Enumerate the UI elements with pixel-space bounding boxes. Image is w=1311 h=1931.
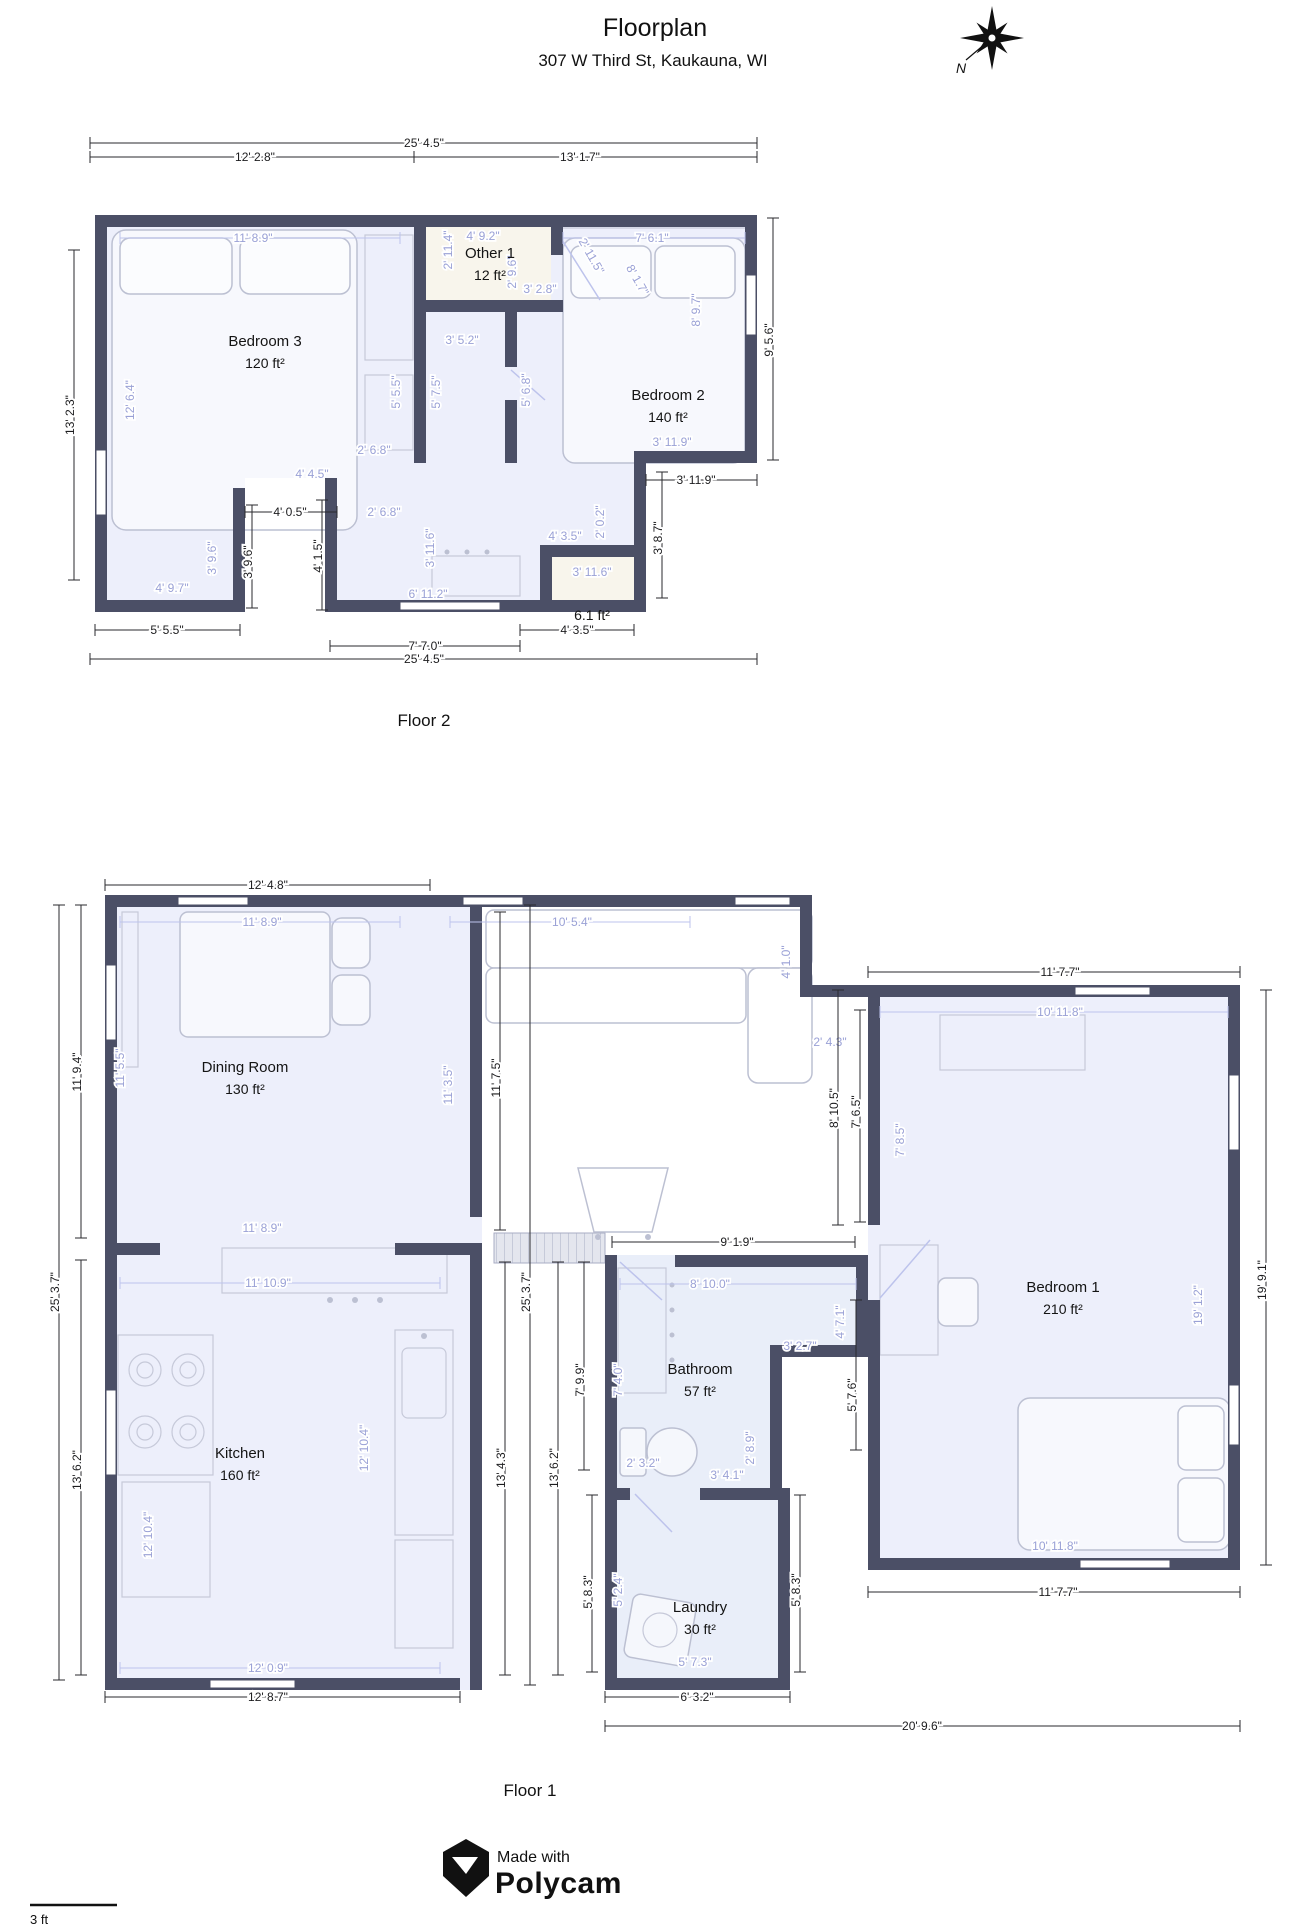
footer: Made with Polycam 3 ft [30,1839,622,1927]
room-area-label: 57 ft² [684,1383,716,1399]
dimension-label: 4' 3.5" [560,623,593,637]
dimension-label: 13' 4.3" [494,1448,508,1488]
dimension-label: 5' 7.5" [429,375,443,408]
bed-bedroom3 [112,230,357,530]
dimension-label: 11' 7.7" [1038,1585,1077,1599]
dimension-label: 7' 6.1" [635,231,668,245]
dimension-label: 3' 8.7" [651,521,665,554]
dimension-label: 4' 7.1" [833,1305,847,1338]
room-area-label: 130 ft² [225,1081,265,1097]
dimension-label: 8' 9.7" [689,293,703,326]
armchair [578,1168,668,1240]
dimension-label: 11' 7.7" [1040,965,1079,979]
room-area-label: 210 ft² [1043,1301,1083,1317]
dimension-label: 10' 5.4" [552,915,592,929]
dimension-label: 3' 4.1" [710,1468,743,1482]
floor2-label: Floor 2 [398,711,451,730]
room-name-label: Bedroom 2 [631,387,704,404]
dimension-label: 19' 9.1" [1255,1260,1269,1300]
window-right [746,275,756,335]
dimension-label: 11' 10.9" [245,1276,291,1290]
dimension-label: 12' 0.9" [248,1661,288,1675]
dimension-label: 3' 11.9" [652,435,691,449]
compass-icon: N [956,6,1024,76]
dimension-label: 2' 3.2" [626,1456,659,1470]
room-name-label: Bathroom [667,1361,732,1378]
room-area-label: 6.1 ft² [574,607,610,623]
dimension-label: 3' 11.6" [423,528,437,567]
dimension-label: 6' 3.2" [680,1690,713,1704]
polycam-logo-icon [443,1839,489,1897]
room-name-label: Dining Room [202,1059,289,1076]
dimension-label: 2' 6.8" [357,443,390,457]
staircase [494,1233,605,1263]
dimension-label: 11' 8.9" [242,915,281,929]
dimension-label: 25' 3.7" [48,1272,62,1312]
dimension-label: 20' 9.6" [902,1719,942,1733]
dimension-label: 11' 3.5" [441,1065,455,1104]
dimension-label: 7' 8.5" [893,1123,907,1156]
floor1-plan: 12' 4.8"25' 3.7"11' 9.4"13' 6.2"11' 8.9"… [48,878,1272,1800]
dimension-label: 9' 5.6" [762,323,776,356]
dimension-label: 3' 2.7" [783,1339,816,1353]
dimension-label: 11' 5.5" [113,1048,127,1087]
floorplan-page: Floorplan 307 W Third St, Kaukauna, WI N [0,0,1311,1931]
dimension-label: 3' 2.8" [523,282,556,296]
dimension-label: 4' 9.2" [466,229,499,243]
dimension-label: 3' 5.2" [445,333,478,347]
dimension-label: 5' 7.6" [845,1378,859,1411]
dimension-label: 13' 6.2" [547,1448,561,1488]
dimension-label: 13' 1.7" [560,150,600,164]
sofa [486,910,812,1083]
dimension-label: 4' 9.7" [155,581,188,595]
dimension-label: 3' 9.6" [241,545,255,578]
window-bottom [400,602,500,610]
dimension-label: 12' 10.4" [357,1425,371,1472]
dimension-label: 25' 4.5" [404,652,444,666]
room-name-label: Other 1 [465,245,515,262]
dimension-label: 10' 11.8" [1032,1539,1078,1553]
dimension-label: 2' 4.3" [813,1035,846,1049]
dimension-label: 2' 8.9" [743,1431,757,1464]
compass-north-label: N [956,60,967,76]
dimension-label: 7' 6.5" [849,1095,863,1128]
dimension-label: 5' 5.5" [150,623,183,637]
room-name-label: Kitchen [215,1445,265,1462]
dimension-label: 5' 6.8" [519,373,533,406]
dimension-label: 25' 4.5" [404,136,444,150]
dimension-label: 5' 7.3" [678,1655,711,1669]
dimension-label: 4' 4.5" [295,467,328,481]
dimension-label: 12' 10.4" [141,1512,155,1559]
dimension-label: 5' 8.3" [581,1575,595,1608]
scale-label: 3 ft [30,1912,48,1927]
dimension-label: 12' 2.8" [235,150,275,164]
room-name-label: Laundry [673,1599,728,1616]
room-area-label: 120 ft² [245,355,285,371]
dimension-label: 4' 1.0" [779,945,793,978]
dimension-label: 8' 10.0" [690,1277,730,1291]
dimension-label: 19' 1.2" [1191,1285,1205,1325]
page-title: Floorplan [603,14,707,42]
dimension-label: 4' 0.5" [273,505,306,519]
dimension-label: 5' 5.5" [389,375,403,408]
dimension-label: 3' 11.9" [676,473,715,487]
dimension-label: 13' 6.2" [70,1450,84,1490]
room-area-label: 12 ft² [474,267,506,283]
window-left [96,450,106,515]
dimension-label: 12' 4.8" [248,878,288,892]
dimension-label: 2' 0.2" [593,505,607,538]
dimension-label: 11' 8.9" [233,231,272,245]
dimension-label: 25' 3.7" [519,1272,533,1312]
made-with-text: Made with [497,1849,570,1866]
dimension-label: 9' 1.9" [720,1235,753,1249]
dimension-label: 3' 9.6" [205,541,219,574]
dimension-label: 11' 8.9" [242,1221,281,1235]
room-name-label: Bedroom 3 [228,333,301,350]
bed-bedroom2 [557,228,751,463]
room-area-label: 140 ft² [648,409,688,425]
floor1-label: Floor 1 [504,1781,557,1800]
dimension-label: 5' 2.4" [611,1573,625,1606]
room-area-label: 30 ft² [684,1621,716,1637]
room-name-label: Bedroom 1 [1026,1279,1099,1296]
dimension-label: 11' 9.4" [70,1052,84,1091]
dimension-label: 7' 7.0" [408,639,441,653]
dimension-label: 2' 11.4" [441,230,455,269]
dimension-label: 2' 6.8" [367,505,400,519]
dimension-label: 8' 10.5" [827,1088,841,1128]
page-subtitle: 307 W Third St, Kaukauna, WI [538,51,767,70]
dimension-label: 13' 2.3" [63,395,77,435]
floorplan-canvas: Floorplan 307 W Third St, Kaukauna, WI N [0,0,1311,1931]
room-kitchen-floor [105,1255,482,1690]
floor2-plan: 25' 4.5"12' 2.8"13' 1.7"13' 2.3"9' 5.6"4… [63,136,779,730]
header: Floorplan 307 W Third St, Kaukauna, WI [538,14,767,70]
dimension-label: 4' 1.5" [311,539,325,572]
dimension-label: 11' 7.5" [489,1058,503,1097]
dimension-label: 7' 9.9" [573,1363,587,1396]
dimension-label: 6' 11.2" [408,587,447,601]
polycam-brand-text: Polycam [495,1867,622,1900]
dimension-label: 5' 8.3" [789,1573,803,1606]
dimension-label: 12' 8.7" [248,1690,288,1704]
dimension-label: 3' 11.6" [572,565,611,579]
dimension-label: 10' 11.8" [1037,1005,1083,1019]
dimension-label: 7' 4.0" [611,1363,625,1396]
dimension-label: 12' 6.4" [123,380,137,420]
dimension-label: 4' 3.5" [548,529,581,543]
room-area-label: 160 ft² [220,1467,260,1483]
